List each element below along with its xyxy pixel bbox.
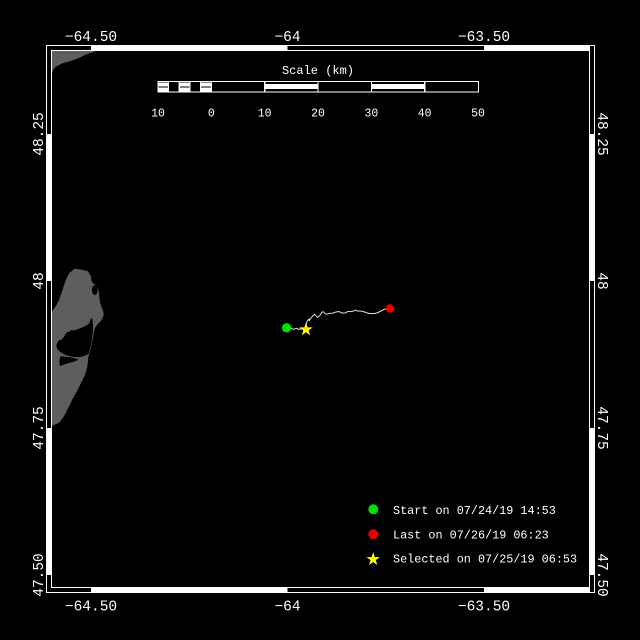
svg-text:−63.50: −63.50	[458, 600, 510, 616]
svg-text:10: 10	[151, 108, 165, 121]
svg-text:47.75: 47.75	[32, 406, 48, 450]
svg-text:−64: −64	[274, 30, 300, 46]
svg-text:Scale (km): Scale (km)	[282, 64, 354, 78]
svg-text:Selected on 07/25/19 06:53: Selected on 07/25/19 06:53	[393, 553, 577, 567]
svg-text:−64.50: −64.50	[65, 600, 117, 616]
svg-text:30: 30	[364, 108, 378, 121]
svg-text:−63.50: −63.50	[458, 30, 510, 46]
svg-text:10: 10	[258, 108, 272, 121]
svg-text:40: 40	[418, 108, 432, 121]
svg-text:50: 50	[471, 108, 485, 121]
svg-text:47.50: 47.50	[32, 553, 48, 597]
svg-text:47.75: 47.75	[593, 406, 609, 450]
svg-text:20: 20	[311, 108, 325, 121]
svg-text:48: 48	[593, 272, 609, 289]
svg-text:−64: −64	[274, 600, 300, 616]
svg-text:47.50: 47.50	[593, 553, 609, 597]
svg-text:−64.50: −64.50	[65, 30, 117, 46]
svg-text:48.25: 48.25	[593, 112, 609, 156]
svg-text:Last on 07/26/19 06:23: Last on 07/26/19 06:23	[393, 528, 549, 542]
svg-text:0: 0	[208, 108, 215, 121]
svg-text:Start on 07/24/19 14:53: Start on 07/24/19 14:53	[393, 504, 556, 518]
svg-text:48: 48	[32, 272, 48, 289]
svg-text:48.25: 48.25	[32, 112, 48, 156]
